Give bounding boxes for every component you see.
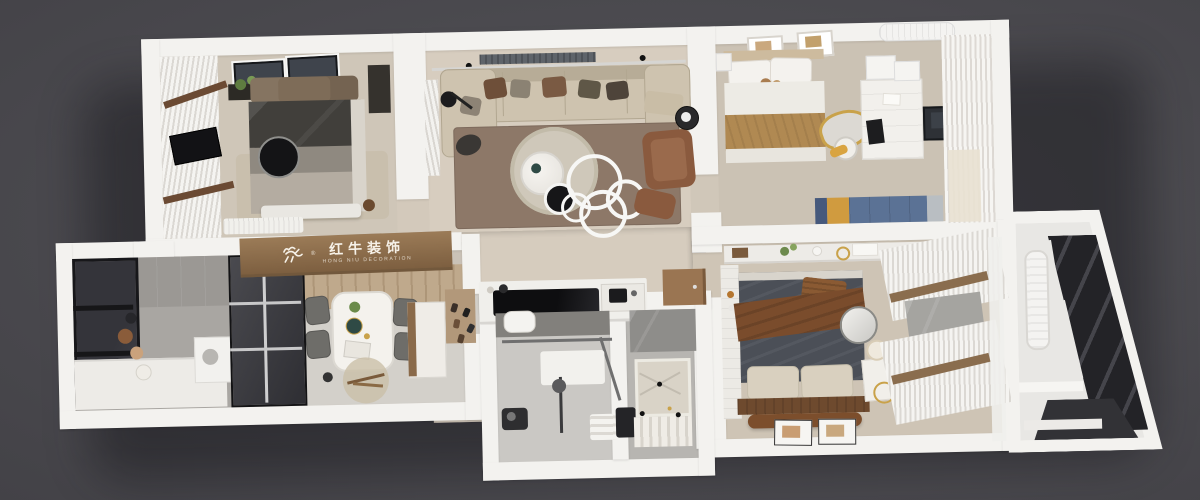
table-gold-dot xyxy=(364,333,370,339)
sideboard-yellow xyxy=(827,197,850,223)
sideboard-wood-edge xyxy=(407,302,417,376)
shelf-box xyxy=(732,248,748,258)
sideboard-navy xyxy=(815,198,828,224)
radiator-tl xyxy=(223,217,303,235)
chair-2 xyxy=(305,329,332,359)
curtain-left-living xyxy=(424,80,440,176)
pillow-2 xyxy=(510,79,531,99)
curtain-cream-tr xyxy=(948,149,982,222)
right-balcony-step-2 xyxy=(1024,419,1102,431)
bed-blanket-tr xyxy=(725,113,826,151)
cabinet-box-tr-2 xyxy=(894,61,920,82)
nightstand-tr xyxy=(716,53,732,71)
bed-sheet-tr xyxy=(724,81,825,117)
chair-1 xyxy=(304,295,331,326)
wall-art-tr-2-print xyxy=(805,36,822,48)
fixture-gold xyxy=(668,406,672,410)
bath-mat xyxy=(540,350,605,385)
registered-mark: ® xyxy=(311,251,316,257)
armchair-seat xyxy=(650,137,688,182)
shower-marble-wall xyxy=(629,309,696,352)
pillow-5 xyxy=(605,80,629,101)
brand-watermark-board: ® 红牛装饰 HONG NIU DECORATION xyxy=(239,231,452,278)
shower-tray xyxy=(634,358,691,417)
shelf-stack xyxy=(852,243,878,257)
radiator-right-balcony xyxy=(1024,250,1050,351)
open-door-leaf xyxy=(662,269,706,306)
master-pillow-2 xyxy=(800,364,853,400)
apartment-plan: ® 红牛装饰 HONG NIU DECORATION xyxy=(0,0,1200,500)
door-handle xyxy=(693,285,697,289)
bull-logo-icon xyxy=(280,244,305,265)
sideboard-blue xyxy=(849,196,928,224)
cabinet-box-tr-1 xyxy=(866,55,897,80)
wardrobe-speaker-tl xyxy=(368,65,391,113)
tablet-tr xyxy=(866,119,885,145)
pillow-4 xyxy=(577,79,601,99)
right-balcony-step-1 xyxy=(1019,381,1083,392)
toilet xyxy=(503,310,535,333)
sideboard-gray xyxy=(927,195,944,221)
master-pillow-1 xyxy=(747,366,799,400)
floor-frame-2-art xyxy=(826,425,844,437)
papers-tr xyxy=(882,93,901,106)
wall-tl-living xyxy=(393,33,429,200)
pillow-3 xyxy=(541,76,567,98)
sink-basin xyxy=(609,288,627,302)
wall-bath-bottom xyxy=(483,457,715,480)
fixture-dot-2 xyxy=(676,412,681,417)
bed-sheet-edge-tl xyxy=(351,99,368,211)
fixture-dot-1 xyxy=(640,411,645,416)
drain xyxy=(657,382,662,387)
bed-foot-tr xyxy=(726,147,826,163)
slat-mat xyxy=(634,416,693,447)
brand-name-cn: 红牛装饰 xyxy=(329,240,405,257)
floor-frame-1-art xyxy=(782,426,800,438)
faucet xyxy=(631,290,637,296)
pillow-1 xyxy=(483,77,508,100)
floorplan-render: ® 红牛装饰 HONG NIU DECORATION xyxy=(0,0,1200,500)
